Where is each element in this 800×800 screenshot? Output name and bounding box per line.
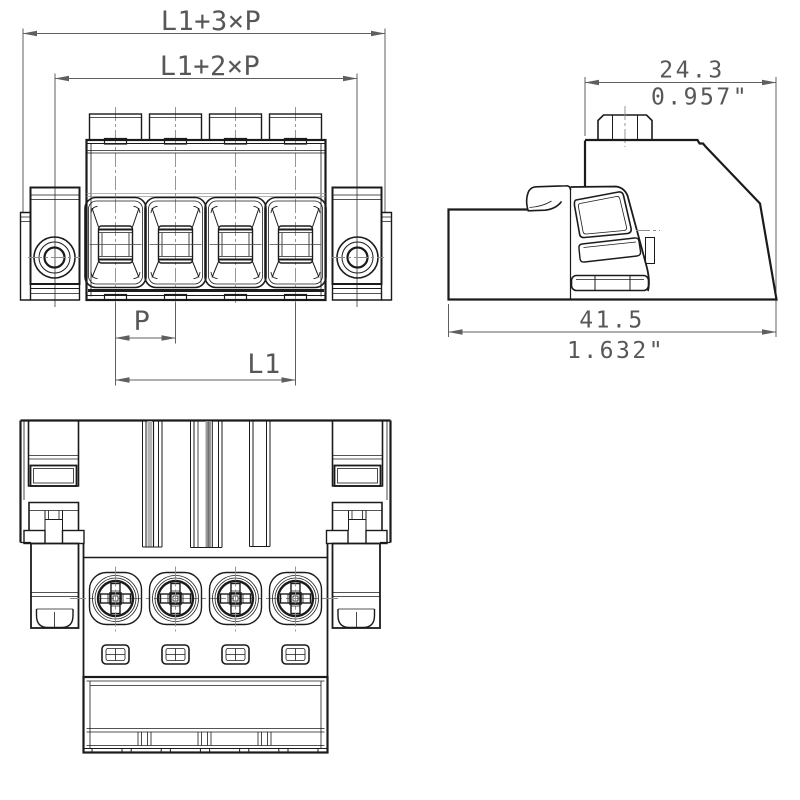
test-slot [162, 645, 189, 664]
dim-label-upper-depth-in: 0.957" [651, 85, 749, 111]
dim-label-mounting: L1+2×P [160, 51, 261, 82]
dim-label-overall-depth-in: 1.632" [567, 338, 665, 364]
bottom-view [21, 421, 391, 753]
rear-body [21, 421, 391, 548]
side-view: 24.3 0.957" 41.5 1.632" [449, 58, 777, 365]
dim-label-overall-depth-mm: 41.5 [579, 308, 644, 334]
plug-front-section [84, 677, 328, 753]
mounting-flange-right [331, 188, 392, 301]
dim-label-upper-depth-mm: 24.3 [659, 58, 724, 84]
drawing-sheet: L1+3×P L1+2×P P L1 [0, 0, 800, 800]
latch-slot [579, 238, 641, 262]
latch-rail [572, 276, 649, 291]
dim-label-pitch: P [134, 306, 151, 337]
clamp-screw [150, 567, 202, 632]
contact-channel-2 [191, 421, 223, 548]
locking-latch [527, 186, 660, 300]
test-slot [222, 645, 249, 664]
contact-channel-3 [250, 421, 271, 547]
dim-label-overall: L1+3×P [161, 6, 262, 37]
mounting-flange-left [21, 188, 82, 301]
contact-channel-1 [143, 421, 163, 547]
clamp-screw [210, 567, 262, 632]
latch-hook-right [327, 503, 388, 629]
clamp-screw [90, 567, 142, 632]
test-slot [282, 645, 309, 664]
dim-label-span: L1 [247, 349, 281, 380]
technical-drawing: L1+3×P L1+2×P P L1 [0, 0, 800, 800]
front-view: L1+3×P L1+2×P P L1 [21, 6, 392, 386]
screw-body [70, 544, 341, 678]
clamp-screw [270, 567, 322, 632]
latch-hook-left [24, 503, 84, 629]
test-slot [102, 645, 129, 664]
